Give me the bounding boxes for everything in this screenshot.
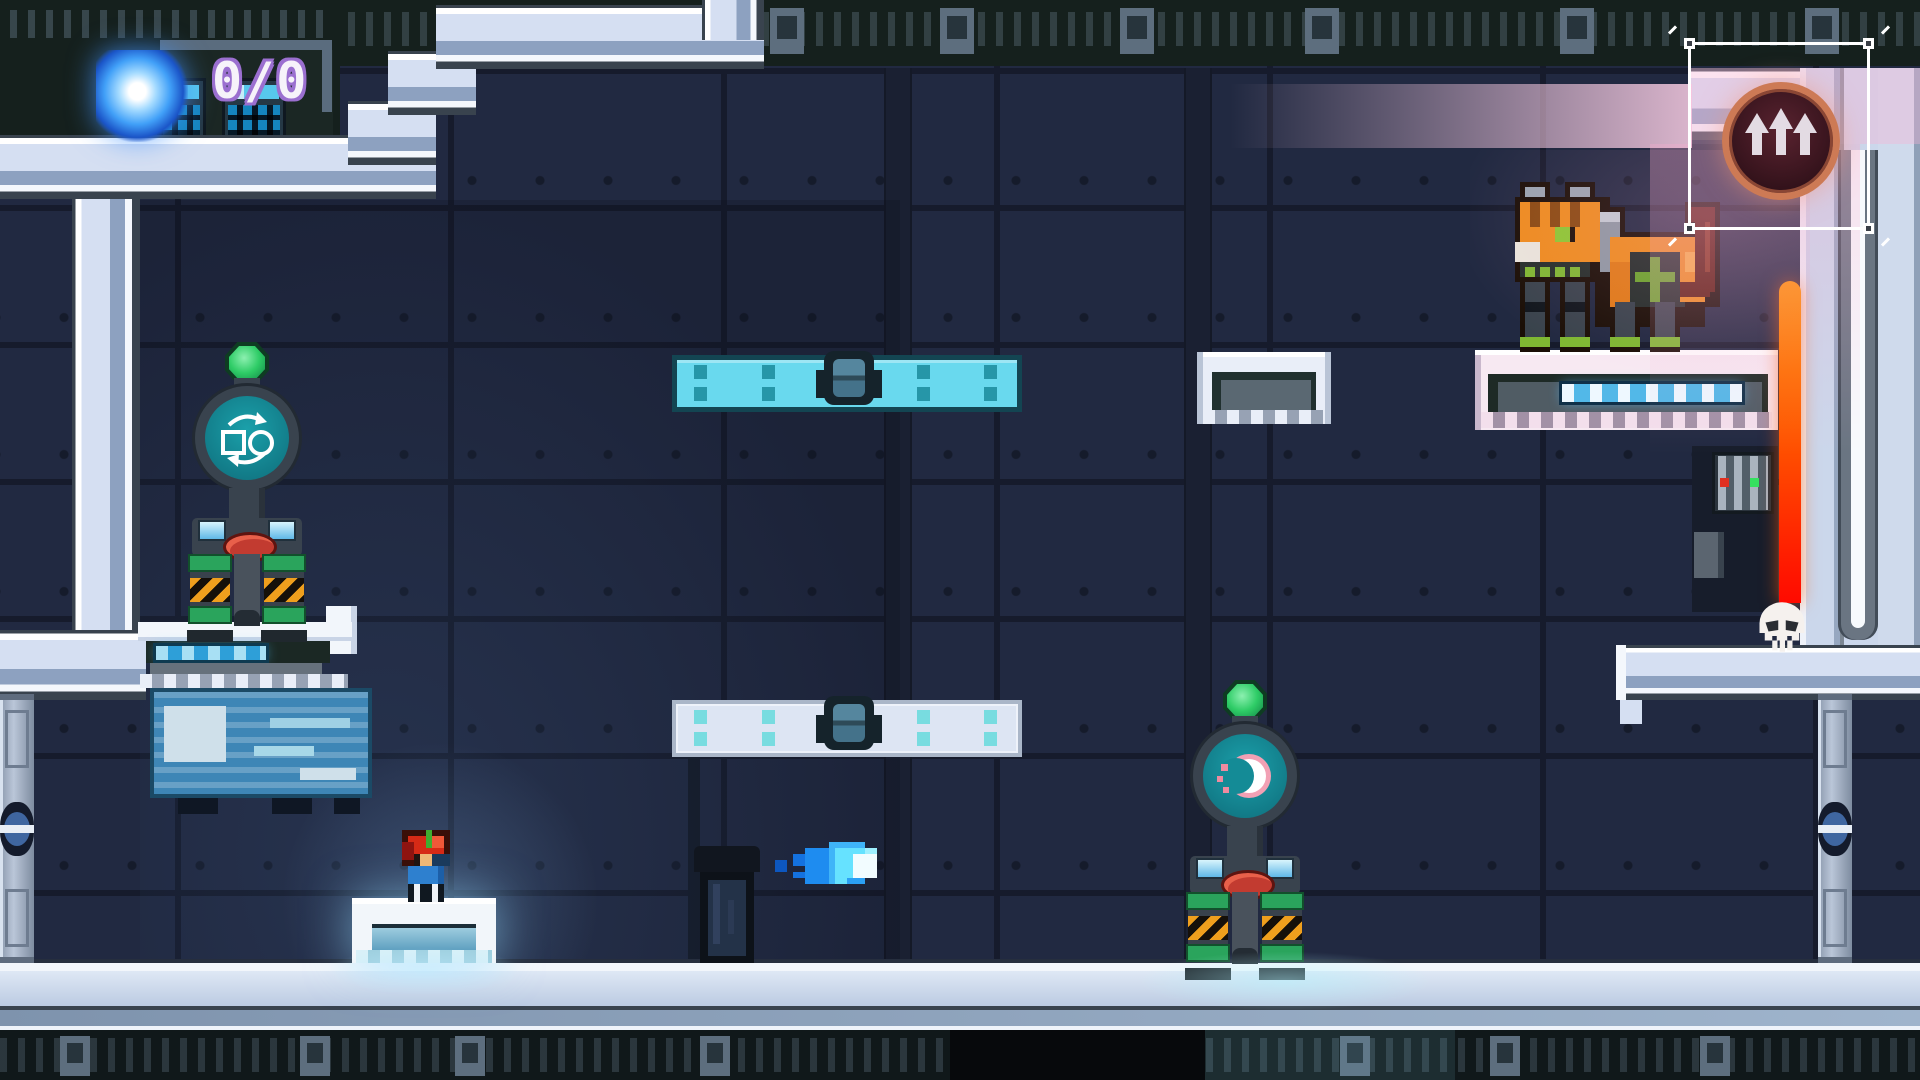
hud-orb-counter: 0/0 [212, 52, 308, 110]
selection-handle[interactable] [1684, 38, 1695, 49]
platform-gear [824, 351, 874, 405]
platform-gear [824, 696, 874, 750]
canister-prop [700, 872, 754, 963]
floor-glow [330, 948, 520, 994]
frame-pipe-stub [702, 0, 764, 40]
hud-energy-orb-icon [96, 50, 188, 142]
eye-emblem-icon [1818, 802, 1852, 856]
emitter-green-light [1750, 478, 1759, 487]
glow-strip [156, 646, 266, 660]
floor [0, 963, 1920, 971]
frame-pipe-left [72, 150, 140, 700]
selection-handle[interactable] [1863, 38, 1874, 49]
station-screen [1203, 734, 1287, 818]
canister-prop [694, 846, 760, 872]
crescent-dash-icon [1213, 744, 1277, 808]
floor [0, 971, 1920, 1006]
floor [0, 1010, 1920, 1026]
frame-ledge-bottom-left [0, 630, 146, 700]
selection-handle[interactable] [1684, 223, 1695, 234]
ledge-end-cap [1616, 645, 1626, 700]
station-screen [205, 396, 289, 480]
selection-handle[interactable] [1863, 223, 1874, 234]
wall-box-prop [1694, 532, 1724, 578]
laser-emitter [1712, 452, 1774, 514]
swap-ability-station[interactable] [182, 342, 312, 634]
floor-machinery [0, 1030, 1920, 1080]
emitter-red-light [1720, 478, 1729, 487]
ledge-end-step [1620, 700, 1642, 724]
game-viewport[interactable]: 0/0 [0, 0, 1920, 1080]
player-character[interactable] [396, 830, 456, 902]
selection-frame[interactable] [1688, 42, 1870, 230]
station-ring [1193, 724, 1297, 828]
station-ring [195, 386, 299, 490]
wall-pillar-emblem [1818, 694, 1852, 963]
support-block-platform [1197, 352, 1331, 424]
flame-projectile [775, 842, 895, 890]
eye-emblem-icon [0, 802, 34, 856]
skull-icon [1752, 596, 1812, 658]
square-circle-swap-icon [215, 406, 279, 470]
dash-ability-station[interactable] [1180, 680, 1310, 972]
wall-pillar-emblem [0, 694, 34, 963]
floor-glow [1140, 952, 1430, 1010]
light-beam [1230, 84, 1692, 148]
